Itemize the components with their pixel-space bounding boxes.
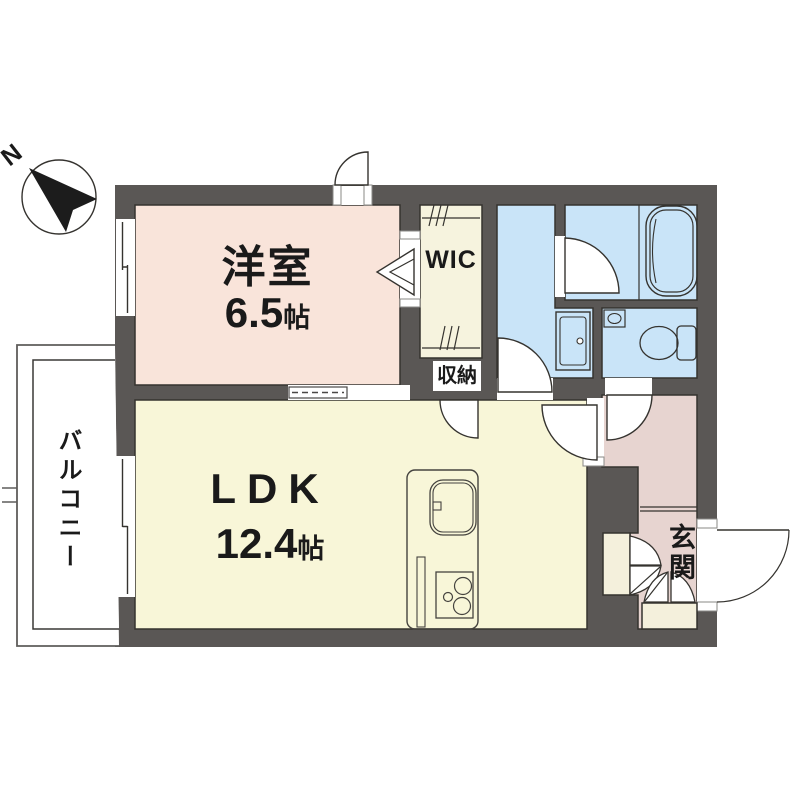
ldk-size-unit: 帖 (297, 534, 324, 564)
yoshitsu-room-size: 6.5帖 (150, 289, 385, 337)
shuno-room-label: 収納 (433, 361, 481, 391)
balcony-divider-mark (2, 488, 17, 502)
balcony-label: バルコニー (50, 400, 85, 600)
front-door-jamb-bottom (697, 602, 717, 611)
front-door-swing (717, 530, 789, 602)
floor-plan-drawing (0, 0, 800, 800)
ldk-size-value: 12.4 (216, 520, 298, 567)
room-ldk (135, 400, 587, 629)
ldk-room-size: 12.4帖 (150, 520, 390, 568)
wic-opening-jamb-bottom (400, 299, 420, 307)
washbasin-drain (577, 338, 583, 344)
ldk-room-label: LDK (150, 465, 390, 513)
yoshitsu-room-label: 洋室 (150, 231, 385, 295)
genkan-room-label: 玄関 (661, 513, 700, 593)
yoshitsu-size-unit: 帖 (283, 303, 310, 333)
shoe-closet (603, 533, 630, 595)
wic-opening-jamb-top (400, 231, 420, 239)
room-wic (420, 205, 482, 358)
front-door-opening (697, 527, 717, 603)
toilet-doorway (605, 378, 652, 395)
floor-plan-canvas: 洋室 6.5帖 WIC 収納 LDK 12.4帖 玄関 バルコニー N (0, 0, 800, 800)
top-door-swing (335, 152, 368, 185)
bathroom-doorway (555, 236, 565, 297)
yoshitsu-size-value: 6.5 (225, 289, 283, 336)
entry-closet (642, 603, 697, 629)
front-door-jamb-top (697, 519, 717, 528)
top-door-jamb-right (364, 185, 372, 205)
wic-room-label: WIC (419, 246, 483, 275)
top-door-jamb-left (333, 185, 341, 205)
room-toilet (602, 308, 697, 378)
